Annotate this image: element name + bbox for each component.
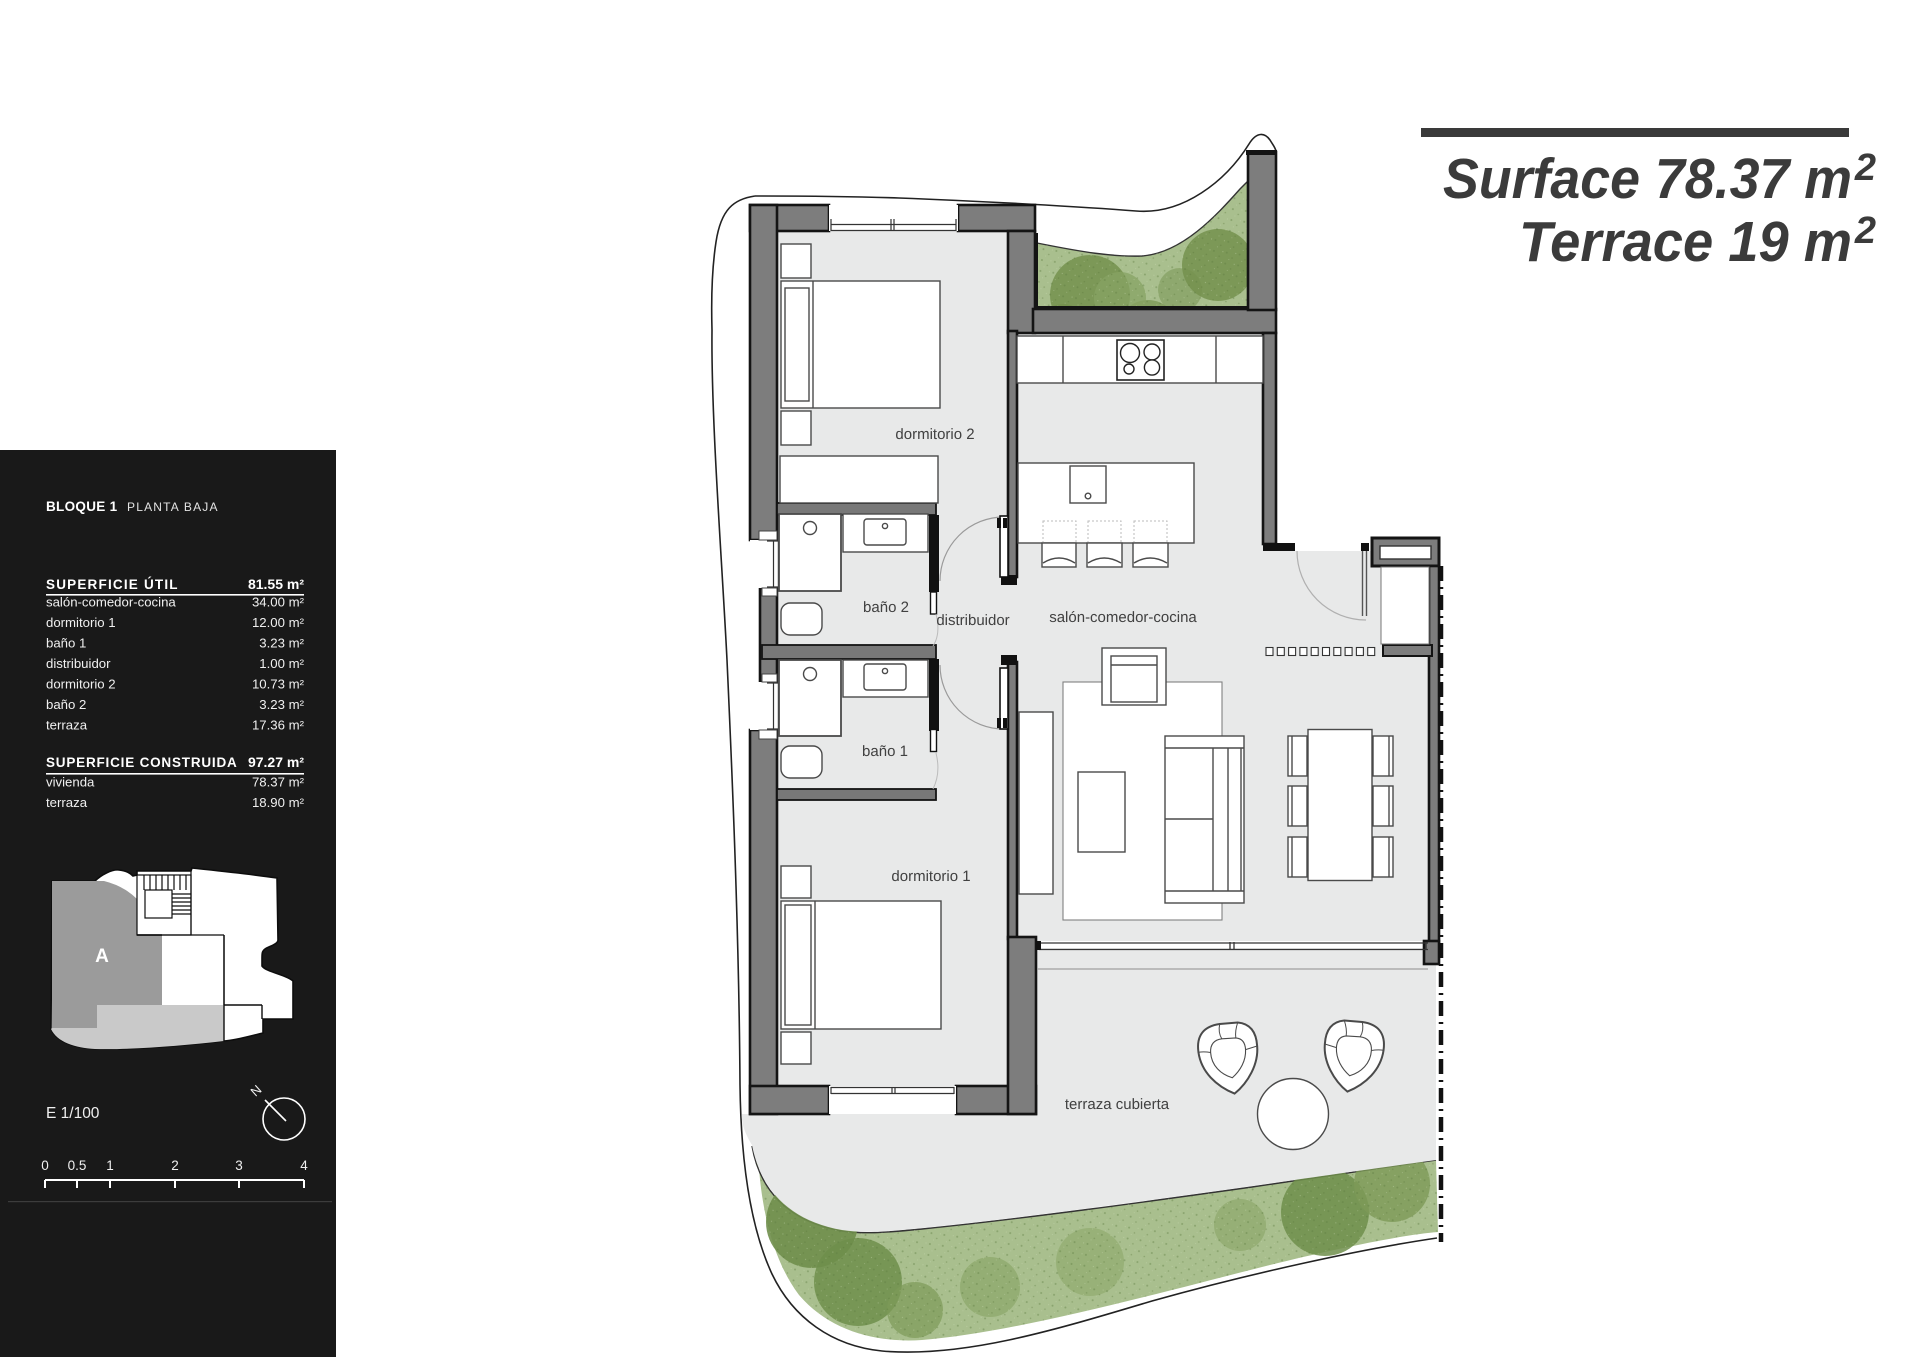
svg-text:17.36 m²: 17.36 m² — [252, 718, 305, 733]
svg-text:1: 1 — [106, 1158, 114, 1173]
svg-text:distribuidor: distribuidor — [46, 656, 111, 671]
svg-text:3.23 m²: 3.23 m² — [259, 636, 304, 651]
svg-text:dormitorio 2: dormitorio 2 — [46, 677, 116, 692]
svg-text:distribuidor: distribuidor — [936, 612, 1009, 629]
svg-text:34.00 m²: 34.00 m² — [252, 595, 305, 610]
svg-text:18.90 m²: 18.90 m² — [252, 795, 305, 810]
svg-text:PLANTA BAJA: PLANTA BAJA — [127, 500, 219, 514]
svg-text:dormitorio 1: dormitorio 1 — [46, 615, 116, 630]
svg-text:terraza: terraza — [46, 795, 88, 810]
svg-text:terraza cubierta: terraza cubierta — [1065, 1096, 1170, 1113]
svg-text:E 1/100: E 1/100 — [46, 1105, 100, 1122]
svg-text:81.55 m²: 81.55 m² — [248, 576, 304, 592]
svg-text:baño 1: baño 1 — [862, 743, 908, 760]
svg-text:4: 4 — [300, 1158, 308, 1173]
svg-text:SUPERFICIE ÚTIL: SUPERFICIE ÚTIL — [46, 577, 179, 592]
svg-text:salón-comedor-cocina: salón-comedor-cocina — [46, 595, 176, 610]
svg-text:A: A — [95, 946, 109, 967]
svg-text:dormitorio 2: dormitorio 2 — [895, 426, 974, 443]
svg-text:2: 2 — [171, 1158, 179, 1173]
svg-text:2: 2 — [1854, 147, 1876, 189]
svg-text:97.27 m²: 97.27 m² — [248, 754, 304, 770]
svg-text:2: 2 — [1854, 210, 1876, 252]
svg-text:1.00 m²: 1.00 m² — [259, 656, 304, 671]
svg-text:3.23 m²: 3.23 m² — [259, 697, 304, 712]
svg-text:Surface 78.37 m: Surface 78.37 m — [1443, 147, 1852, 211]
svg-text:0: 0 — [41, 1158, 49, 1173]
svg-text:0.5: 0.5 — [68, 1158, 87, 1173]
svg-text:BLOQUE 1: BLOQUE 1 — [46, 499, 118, 514]
svg-text:Terrace 19 m: Terrace 19 m — [1519, 210, 1852, 274]
svg-text:dormitorio 1: dormitorio 1 — [891, 868, 970, 885]
svg-text:terraza: terraza — [46, 718, 88, 733]
svg-text:salón-comedor-cocina: salón-comedor-cocina — [1049, 609, 1197, 626]
svg-text:SUPERFICIE CONSTRUIDA: SUPERFICIE CONSTRUIDA — [46, 755, 238, 770]
svg-text:vivienda: vivienda — [46, 775, 95, 790]
svg-text:12.00 m²: 12.00 m² — [252, 615, 305, 630]
svg-text:baño 1: baño 1 — [46, 636, 86, 651]
svg-text:baño 2: baño 2 — [46, 697, 86, 712]
svg-text:78.37 m²: 78.37 m² — [252, 775, 305, 790]
svg-text:baño 2: baño 2 — [863, 599, 909, 616]
svg-text:3: 3 — [235, 1158, 243, 1173]
svg-text:10.73 m²: 10.73 m² — [252, 677, 305, 692]
